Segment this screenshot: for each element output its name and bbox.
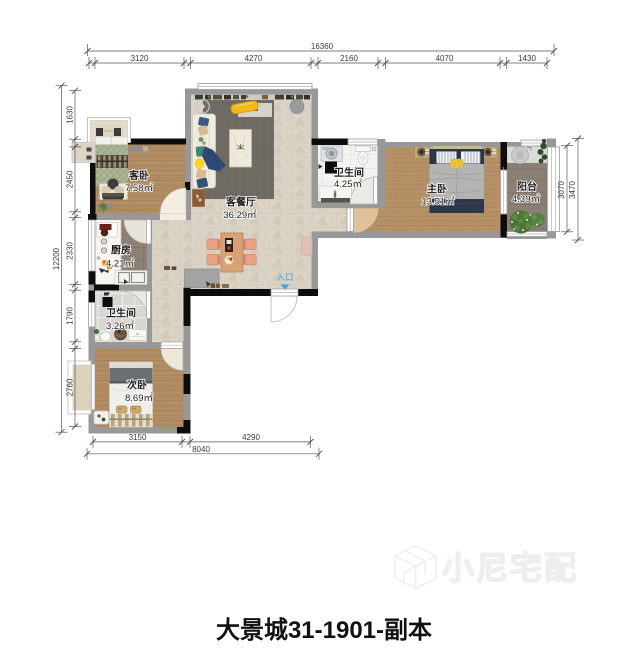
svg-text:4270: 4270	[245, 54, 263, 63]
svg-text:2160: 2160	[340, 54, 358, 63]
svg-text:7.58㎡: 7.58㎡	[125, 183, 153, 194]
svg-text:13.51㎡: 13.51㎡	[421, 197, 455, 208]
svg-text:次卧: 次卧	[127, 379, 147, 392]
svg-text:1790: 1790	[66, 307, 75, 325]
svg-text:12200: 12200	[52, 247, 61, 270]
svg-text:1430: 1430	[518, 54, 536, 63]
svg-text:大景城31-1901-副本: 大景城31-1901-副本	[216, 616, 432, 644]
svg-text:36.29㎡: 36.29㎡	[223, 210, 257, 221]
svg-text:3.26㎡: 3.26㎡	[106, 321, 134, 332]
svg-text:8040: 8040	[192, 445, 210, 454]
svg-text:4290: 4290	[242, 433, 260, 442]
svg-text:4.21㎡: 4.21㎡	[106, 259, 134, 270]
svg-text:4.39㎡: 4.39㎡	[512, 194, 540, 205]
svg-text:2450: 2450	[66, 170, 75, 188]
svg-text:客卧: 客卧	[128, 169, 149, 182]
svg-text:主卧: 主卧	[427, 183, 447, 196]
svg-text:16360: 16360	[311, 42, 334, 51]
svg-text:1630: 1630	[66, 106, 75, 124]
svg-text:阳台: 阳台	[517, 180, 537, 193]
svg-text:2760: 2760	[66, 378, 75, 396]
svg-text:4.25㎡: 4.25㎡	[334, 179, 362, 190]
svg-text:4070: 4070	[436, 54, 454, 63]
svg-text:小尼宅配: 小尼宅配	[442, 550, 578, 586]
svg-text:客餐厅: 客餐厅	[225, 196, 256, 209]
svg-text:卫生间: 卫生间	[106, 307, 136, 320]
svg-text:卫生间: 卫生间	[334, 166, 364, 179]
svg-text:8.69㎡: 8.69㎡	[125, 393, 153, 404]
svg-text:入口: 入口	[275, 272, 293, 282]
svg-text:3120: 3120	[131, 54, 149, 63]
svg-text:3150: 3150	[129, 433, 147, 442]
svg-text:3470: 3470	[568, 181, 577, 199]
svg-text:厨房: 厨房	[111, 244, 131, 257]
svg-text:3070: 3070	[557, 181, 566, 199]
svg-text:2330: 2330	[66, 242, 75, 260]
